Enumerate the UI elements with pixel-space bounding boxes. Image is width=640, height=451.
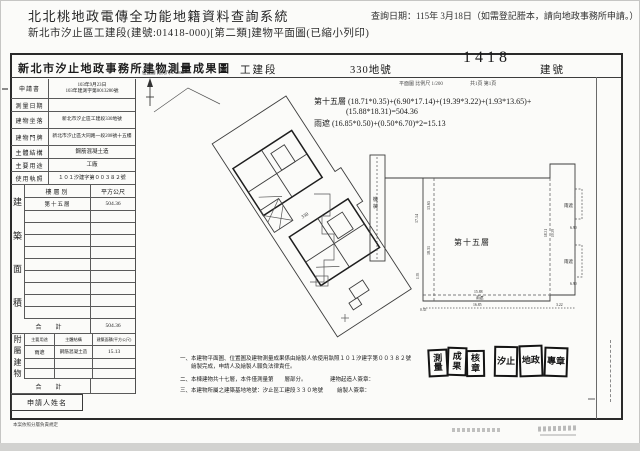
- scan-smudge: [540, 434, 576, 436]
- building-number-unit: 建號: [540, 62, 565, 77]
- scanner-edge-strip: [0, 443, 640, 451]
- dim-small-a: 1.93: [416, 273, 420, 279]
- canopy-label: 雨遮: [564, 258, 573, 265]
- side-char: 築: [13, 229, 22, 242]
- table-header-row: 主要用途 主體結構 建築面積(平方公尺): [25, 334, 135, 346]
- col-area: 平方公尺: [91, 185, 135, 197]
- scan-smudge: [538, 425, 576, 431]
- scan-smudge: [452, 428, 500, 432]
- building-info-table: 申請書 103年9月23日 103年建測字第0013280號 測量日期 建物坐落…: [11, 79, 136, 185]
- floor-area: 504.36: [91, 198, 135, 210]
- dim-bottom-canopy: 16.85: [473, 303, 482, 307]
- row-value: 103年9月23日 103年建測字第0013280號: [49, 79, 135, 98]
- note-line: 一、本建物平面圖、位置圖及建物測量成果係由繪製人依使用執照１０１汐建字第００３８…: [180, 354, 411, 362]
- row-value: [49, 99, 135, 111]
- table-row: 使用執照 １０１汐建字第００３８２號: [11, 172, 135, 185]
- total-value: 504.36: [91, 319, 135, 333]
- canopy-label: 雨遮: [564, 202, 573, 209]
- note-line: 三、本建物所屬之建築基地地號：汐止區工建段３３０地號: [180, 386, 323, 394]
- left-edge-tick: [2, 88, 8, 90]
- system-title: 北北桃地政電傳全功能地籍資料查詢系統: [28, 6, 289, 25]
- side-char: 面: [13, 262, 22, 275]
- drafter-signature-label: 繪製人簽章：: [337, 386, 370, 394]
- annex-area: 15.13: [93, 346, 135, 358]
- total-label: 合 計: [11, 319, 91, 333]
- parcel-number: 330: [301, 212, 310, 221]
- table-row: [25, 359, 135, 369]
- area-total-row: 合 計 504.36: [11, 319, 135, 334]
- dash-artifact: [588, 398, 595, 400]
- dim-canopy-top: 6.90: [570, 226, 577, 230]
- table-row: 測量日期: [11, 99, 135, 112]
- row-label: 使用執照: [11, 172, 49, 184]
- north-arrow-icon: [146, 78, 154, 106]
- scale-note: 平面圖 比例尺 1/200: [399, 80, 443, 87]
- table-row: [25, 369, 135, 379]
- row-label: 測量日期: [11, 99, 49, 111]
- side-char: 建: [13, 195, 22, 208]
- table-row: [25, 307, 135, 319]
- table-row: [25, 259, 135, 271]
- row-label: 建物門牌: [11, 129, 49, 145]
- dim-bottom-main: 15.88: [474, 290, 483, 294]
- note-line: 二、本棟建物共十七層，本件僅測量第 層部分。: [180, 375, 307, 383]
- col-use: 主要用途: [25, 334, 55, 345]
- dim-left-outer: 17.14: [414, 214, 419, 223]
- col-annex-area: 建築面積(平方公尺): [93, 334, 135, 345]
- row-label: 主體結構: [11, 146, 49, 158]
- side-char: 建: [14, 357, 22, 368]
- table-row: 主要用途 工廠: [11, 159, 135, 172]
- side-char: 附: [14, 334, 22, 345]
- table-row: [25, 235, 135, 247]
- side-char: 物: [14, 368, 22, 379]
- seal-stamp: 汐止: [494, 346, 519, 377]
- table-row: [25, 247, 135, 259]
- col-floor: 樓層別: [25, 185, 91, 197]
- room-label: 第十五層: [454, 237, 490, 247]
- side-char: 屬: [14, 345, 22, 356]
- area-side-label: 建 築 面 積: [11, 185, 25, 319]
- total-label: 合 計: [11, 379, 91, 393]
- footer-tiny-note: 本案依照分層負責規定: [13, 422, 58, 428]
- table-row: [25, 283, 135, 295]
- dim-right-b: 19.39: [551, 229, 555, 237]
- row-label: 建物坐落: [11, 112, 49, 128]
- canopy-edge-label: 雨遮: [476, 295, 484, 300]
- floor-area-table: 建 築 面 積 樓層別 平方公尺 第十五層 504.36: [11, 185, 136, 334]
- row-label: 申請書: [11, 79, 49, 98]
- table-row: [25, 211, 135, 223]
- row-value: 新北市汐止區大同路一段208號十五樓: [49, 129, 135, 145]
- annex-structure: 鋼筋混凝土造: [55, 346, 93, 358]
- seal-stamp: 核章: [466, 350, 485, 377]
- total-value: [91, 379, 135, 393]
- canopy-outline: [575, 189, 582, 219]
- annex-total-row: 合 計: [11, 379, 135, 394]
- table-row: 建物門牌 新北市汐止區大同路一段208號十五樓: [11, 129, 135, 146]
- row-value: 工廠: [49, 159, 135, 171]
- site-scale-label: 位置圖 比例尺 1/1500: [142, 69, 184, 76]
- seal-stamp: 成果: [447, 347, 468, 377]
- table-row: [25, 295, 135, 307]
- annex-use: 雨遮: [25, 346, 55, 358]
- note-line: 繪製完成，申請人及繪製人願負法律責任。: [180, 362, 296, 370]
- dim-left-b: 18.31: [426, 246, 431, 255]
- row-value: 鋼筋混凝土造: [49, 146, 135, 158]
- dim-right-a: 18.31: [544, 229, 548, 237]
- small-structure: [349, 298, 362, 310]
- table-header-row: 樓層別 平方公尺: [25, 185, 135, 198]
- page-note: 共1頁 第1頁: [470, 80, 496, 87]
- document-subtitle: 新北市汐止區工建段(建號:01418-000)[第二類]建物平面圖(已縮小列印): [28, 25, 369, 40]
- row-label: 主要用途: [11, 159, 49, 171]
- machine-room-label: 機 械: [373, 196, 379, 210]
- road-line: [154, 88, 220, 112]
- floor-name: 第十五層: [25, 198, 91, 210]
- side-char: 積: [13, 296, 22, 309]
- row-value: １０１汐建字第００３８２號: [49, 172, 135, 184]
- right-dashed-line: [610, 340, 611, 402]
- col-structure: 主體結構: [55, 334, 93, 345]
- annex-side-label: 附 屬 建 物: [11, 334, 25, 379]
- dim-small-b: 0.35: [420, 308, 426, 312]
- machine-room-strip: 機 械: [370, 155, 385, 261]
- dim-canopy-bottom: 6.90: [570, 282, 577, 286]
- query-date: 查詢日期：115年 3月18日（如需登記謄本，請向地政事務所申請。）: [371, 9, 638, 22]
- table-row: 申請書 103年9月23日 103年建測字第0013280號: [11, 79, 135, 99]
- table-row: 建物坐落 新北市汐止區工建段330地號: [11, 112, 135, 129]
- scanned-document-page: 北北桃地政電傳全功能地籍資料查詢系統 新北市汐止區工建段(建號:01418-00…: [0, 0, 640, 451]
- seal-stamp: 專章: [543, 347, 568, 378]
- builder-signature-label: 建物起造人簽章：: [330, 375, 374, 383]
- seal-stamp: 測量: [427, 348, 448, 377]
- table-row: 主體結構 鋼筋混凝土造: [11, 146, 135, 159]
- building-number: 1418: [463, 49, 511, 67]
- dim-left-a: 13.65: [426, 201, 431, 210]
- value-line-2: 103年建測字第0013280號: [66, 89, 119, 95]
- table-row: 雨遮 鋼筋混凝土造 15.13: [25, 346, 135, 359]
- table-row: 第十五層 504.36: [25, 198, 135, 211]
- table-row: [25, 271, 135, 283]
- canopy-outline: [575, 245, 582, 277]
- applicant-name-box: 申請人姓名: [11, 394, 83, 411]
- annex-table: 附 屬 建 物 主要用途 主體結構 建築面積(平方公尺) 雨遮 鋼筋混凝土造 1…: [11, 334, 136, 394]
- seal-stamp: 地政: [518, 345, 543, 378]
- row-value: 新北市汐止區工建段330地號: [49, 112, 135, 128]
- floor-plan-drawing: 機 械 第十五層 雨遮 雨遮 6.90 6.90 17.14 13.65 18.…: [366, 105, 598, 317]
- table-row: [25, 223, 135, 235]
- dim-bottom-right: 3.22: [556, 303, 563, 307]
